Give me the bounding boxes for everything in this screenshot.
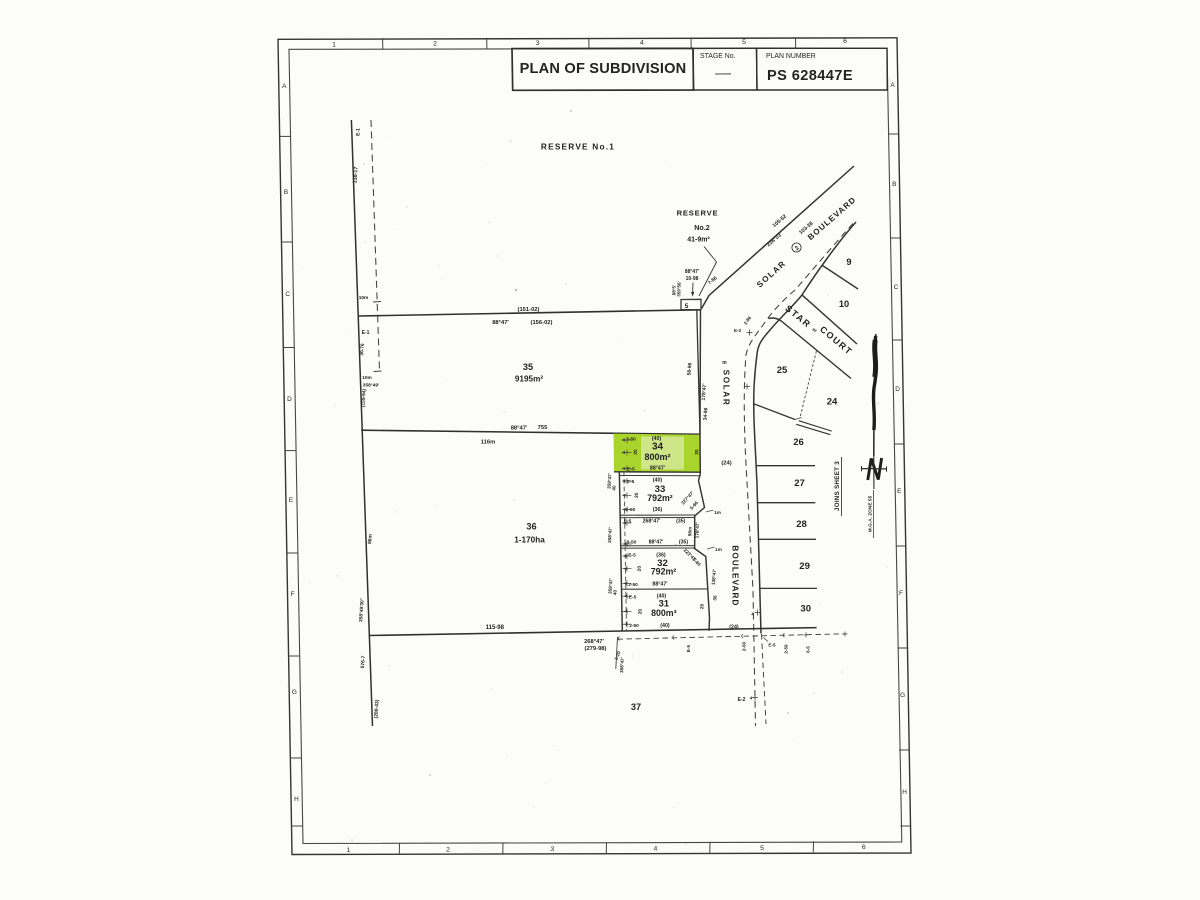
svg-text:G: G (292, 689, 297, 696)
svg-text:E-1: E-1 (362, 330, 370, 336)
svg-text:2-50: 2-50 (629, 623, 639, 629)
svg-text:4: 4 (654, 845, 658, 852)
svg-text:E-5: E-5 (627, 467, 635, 473)
svg-text:41-9m²: 41-9m² (687, 236, 710, 243)
svg-text:E: E (289, 497, 293, 504)
svg-text:E-5: E-5 (768, 643, 776, 648)
svg-text:755: 755 (538, 425, 548, 431)
svg-text:9195m²: 9195m² (515, 375, 543, 384)
svg-text:27: 27 (794, 478, 805, 489)
svg-text:JOINS SHEET 3: JOINS SHEET 3 (834, 461, 841, 511)
svg-text:3: 3 (550, 846, 554, 853)
svg-text:E-1: E-1 (355, 128, 361, 136)
svg-text:1m: 1m (715, 547, 722, 552)
svg-text:2: 2 (446, 847, 450, 854)
svg-text:5: 5 (760, 845, 764, 852)
svg-text:6: 6 (843, 38, 847, 45)
svg-text:PS 628447E: PS 628447E (767, 68, 853, 84)
svg-text:20: 20 (633, 449, 639, 455)
svg-text:E-5: E-5 (627, 479, 635, 485)
svg-text:No.2: No.2 (694, 223, 710, 232)
svg-text:H: H (902, 789, 907, 796)
svg-text:(35): (35) (676, 519, 685, 525)
svg-text:2-59: 2-59 (784, 644, 789, 654)
svg-text:792m²: 792m² (647, 493, 672, 503)
svg-text:E: E (897, 488, 901, 495)
svg-text:1m: 1m (714, 510, 721, 515)
svg-text:26: 26 (793, 437, 804, 448)
svg-text:116m: 116m (481, 439, 496, 445)
svg-text:D: D (895, 386, 900, 393)
svg-text:30: 30 (800, 604, 811, 615)
svg-text:BOULEVARD: BOULEVARD (731, 545, 740, 606)
svg-text:30-76: 30-76 (359, 343, 366, 356)
svg-text:138-17: 138-17 (352, 166, 359, 183)
svg-text:G: G (900, 692, 905, 699)
svg-text:29: 29 (799, 561, 810, 572)
svg-text:88°47': 88°47' (652, 582, 667, 588)
svg-text:PLAN NUMBER: PLAN NUMBER (766, 53, 816, 60)
svg-text:88°47': 88°47' (650, 466, 665, 472)
svg-text:58-96: 58-96 (687, 362, 694, 375)
svg-text:E-5: E-5 (628, 553, 636, 559)
svg-text:10-98: 10-98 (686, 276, 699, 282)
svg-text:A: A (282, 83, 287, 90)
svg-text:178°47': 178°47' (701, 383, 708, 400)
svg-text:B: B (284, 189, 288, 196)
svg-text:24: 24 (827, 397, 838, 408)
svg-text:2: 2 (794, 245, 801, 252)
svg-text:358°47': 358°47' (607, 527, 613, 543)
svg-text:36: 36 (526, 522, 536, 532)
svg-text:1-170ha: 1-170ha (514, 536, 545, 545)
svg-text:C: C (285, 291, 290, 298)
svg-text:SOLAR: SOLAR (755, 259, 788, 290)
svg-text:5: 5 (685, 303, 689, 310)
svg-text:226°23': 226°23' (766, 232, 784, 248)
svg-text:3-50: 3-50 (627, 539, 637, 545)
svg-text:C: C (894, 284, 899, 291)
svg-text:(35): (35) (679, 539, 688, 545)
svg-text:E-3: E-3 (734, 328, 742, 333)
svg-text:1: 1 (347, 847, 351, 854)
svg-text:10m: 10m (362, 375, 372, 381)
svg-text:(280-43): (280-43) (373, 699, 380, 719)
svg-text:2: 2 (433, 41, 437, 48)
svg-text:358°47': 358°47' (619, 657, 625, 673)
svg-text:E-5: E-5 (629, 595, 637, 601)
svg-text:(40): (40) (660, 623, 670, 629)
svg-text:(151-02): (151-02) (518, 307, 540, 313)
svg-text:800m²: 800m² (644, 452, 670, 462)
svg-text:34-96: 34-96 (703, 407, 710, 420)
svg-text:1: 1 (332, 41, 336, 48)
svg-text:6-5: 6-5 (806, 646, 811, 653)
svg-text:2-50: 2-50 (626, 436, 636, 442)
svg-text:359°56': 359°56' (676, 281, 682, 297)
svg-text:(156-02): (156-02) (531, 320, 553, 326)
svg-text:358°49': 358°49' (363, 383, 379, 389)
svg-text:88°47': 88°47' (649, 539, 664, 545)
svg-text:792m²: 792m² (651, 567, 676, 577)
svg-text:4: 4 (750, 696, 753, 701)
svg-text:2-50: 2-50 (742, 641, 747, 651)
svg-text:5: 5 (742, 39, 746, 46)
svg-text:m: m (722, 360, 727, 366)
svg-text:20: 20 (634, 492, 640, 498)
svg-text:40: 40 (611, 485, 616, 491)
svg-text:20: 20 (638, 608, 644, 614)
svg-text:28: 28 (796, 519, 807, 530)
svg-text:96m: 96m (367, 533, 374, 544)
svg-text:RESERVE No.1: RESERVE No.1 (541, 142, 615, 152)
svg-text:A: A (890, 82, 895, 89)
svg-text:F: F (899, 590, 903, 597)
svg-text:138°47': 138°47' (711, 569, 717, 585)
svg-text:2-50: 2-50 (628, 582, 638, 588)
svg-text:10: 10 (839, 299, 849, 309)
svg-text:et: et (811, 327, 818, 334)
svg-text:D: D (287, 396, 292, 403)
svg-text:B: B (892, 181, 896, 188)
svg-text:(36): (36) (653, 507, 663, 513)
svg-text:(24): (24) (729, 624, 739, 630)
svg-text:COURT: COURT (818, 324, 855, 357)
svg-text:5-60: 5-60 (691, 557, 702, 567)
svg-text:STAGE No.: STAGE No. (700, 53, 736, 60)
svg-text:35: 35 (523, 362, 533, 372)
svg-text:20: 20 (637, 566, 643, 572)
svg-text:F: F (291, 591, 295, 598)
svg-text:20: 20 (694, 449, 700, 455)
svg-text:E-5: E-5 (686, 644, 691, 652)
svg-text:115-98: 115-98 (486, 625, 505, 631)
svg-text:96m: 96m (687, 527, 692, 537)
svg-text:37: 37 (631, 702, 641, 712)
svg-text:9: 9 (846, 257, 851, 267)
svg-text:178°47': 178°47' (695, 522, 701, 538)
svg-text:SOLAR: SOLAR (722, 370, 731, 407)
svg-text:88°5': 88°5' (671, 285, 676, 296)
svg-text:10m: 10m (359, 295, 369, 301)
svg-text:268°47': 268°47' (584, 639, 604, 645)
svg-text:PLAN OF SUBDIVISION: PLAN OF SUBDIVISION (520, 61, 687, 77)
svg-text:5-66: 5-66 (689, 500, 699, 511)
svg-text:268°47': 268°47' (643, 519, 661, 525)
svg-text:E-2: E-2 (738, 697, 746, 703)
svg-text:3: 3 (536, 40, 540, 47)
svg-text:2-86: 2-86 (743, 315, 753, 326)
svg-text:RESERVE: RESERVE (677, 209, 719, 218)
svg-text:M.G.A. ZONE 55: M.G.A. ZONE 55 (868, 495, 874, 532)
svg-text:20: 20 (699, 603, 704, 609)
svg-text:576-7: 576-7 (360, 655, 367, 668)
svg-text:40: 40 (612, 589, 617, 595)
svg-text:(24): (24) (721, 461, 731, 467)
svg-text:H: H (294, 796, 299, 803)
svg-text:88°47': 88°47' (492, 320, 509, 326)
svg-text:6: 6 (862, 844, 866, 851)
svg-text:25: 25 (777, 365, 788, 376)
svg-text:(40): (40) (653, 478, 663, 484)
svg-text:4: 4 (640, 39, 644, 46)
svg-text:36: 36 (712, 595, 717, 601)
svg-text:88°47': 88°47' (511, 426, 528, 432)
svg-text:(279-98): (279-98) (585, 646, 607, 652)
svg-text:800m³: 800m³ (651, 608, 676, 618)
svg-text:88°47': 88°47' (685, 269, 699, 275)
svg-text:358°49'30": 358°49'30" (358, 598, 366, 622)
